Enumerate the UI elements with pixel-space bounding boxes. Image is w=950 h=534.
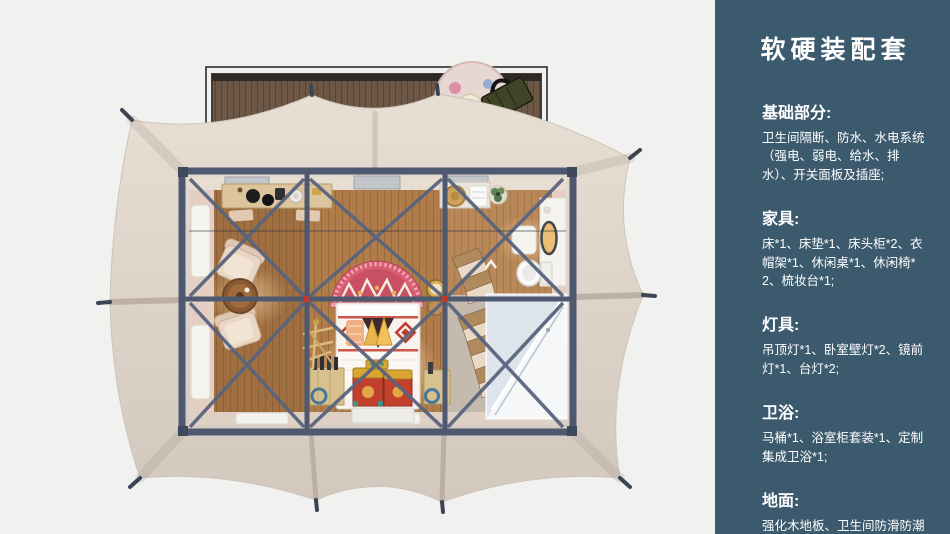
- toilet: [517, 260, 552, 286]
- spec-panel: 软硬装配套 基础部分: 卫生间隔断、防水、水电系统（强电、弱电、给水、排水）、开…: [715, 0, 950, 534]
- section-lighting: 灯具: 吊顶灯*1、卧室壁灯*2、镜前灯*1、台灯*2;: [762, 311, 932, 378]
- section-body: 马桶*1、浴室柜套装*1、定制集成卫浴*1;: [762, 429, 927, 466]
- section-heading: 卫浴:: [762, 399, 932, 423]
- section-body: 吊顶灯*1、卧室壁灯*2、镜前灯*1、台灯*2;: [762, 341, 927, 378]
- plant: [489, 186, 507, 204]
- frame-joint-red: [304, 296, 310, 302]
- section-body: 床*1、床垫*1、床头柜*2、衣帽架*1、休闲桌*1、休闲椅*2、梳妆台*1;: [762, 235, 927, 290]
- section-heading: 家具:: [762, 205, 932, 229]
- screenshot-root: 软硬装配套 基础部分: 卫生间隔断、防水、水电系统（强电、弱电、给水、排水）、开…: [0, 0, 950, 534]
- panel-content: 基础部分: 卫生间隔断、防水、水电系统（强电、弱电、给水、排水）、开关面板及插座…: [715, 66, 950, 534]
- section-body: 强化木地板、卫生间防滑防潮石塑板;: [762, 517, 927, 534]
- floorplan-svg: [0, 0, 715, 534]
- bed-foot-mat: [352, 408, 414, 423]
- section-heading: 地面:: [762, 487, 932, 511]
- section-bathroom: 卫浴: 马桶*1、浴室柜套装*1、定制集成卫浴*1;: [762, 399, 932, 466]
- section-furniture: 家具: 床*1、床垫*1、床头柜*2、衣帽架*1、休闲桌*1、休闲椅*2、梳妆台…: [762, 205, 932, 290]
- section-heading: 灯具:: [762, 311, 932, 335]
- panel-title: 软硬装配套: [721, 30, 950, 66]
- section-body: 卫生间隔断、防水、水电系统（强电、弱电、给水、排水）、开关面板及插座;: [762, 129, 927, 184]
- section-flooring: 地面: 强化木地板、卫生间防滑防潮石塑板;: [762, 487, 932, 534]
- room: [178, 167, 577, 436]
- coffee-table: [223, 279, 257, 313]
- frame-joint-red: [442, 296, 448, 302]
- section-basics: 基础部分: 卫生间隔断、防水、水电系统（强电、弱电、给水、排水）、开关面板及插座…: [762, 99, 932, 184]
- section-heading: 基础部分:: [762, 99, 932, 123]
- floorplan-illustration: [0, 0, 715, 534]
- vanity-mirror: [542, 222, 557, 254]
